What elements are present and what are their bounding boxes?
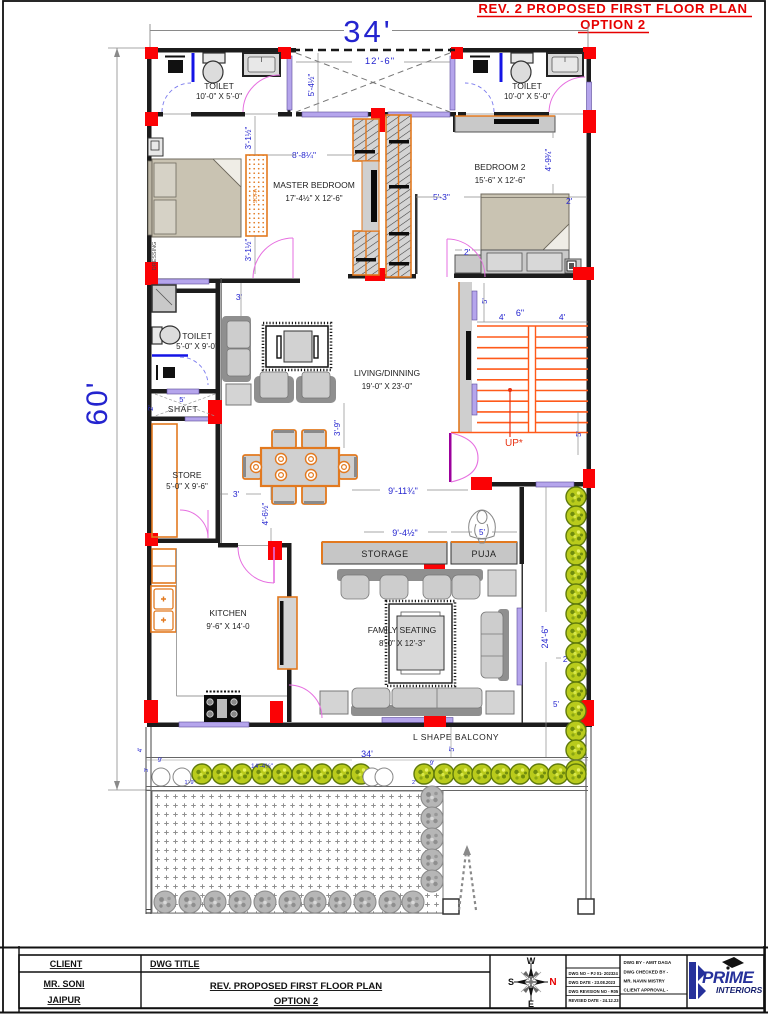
svg-text:TOILET: TOILET	[204, 81, 234, 91]
svg-text:PUJA: PUJA	[471, 549, 496, 559]
svg-text:DWG CHECKED BY -: DWG CHECKED BY -	[624, 970, 669, 975]
svg-text:REV. PROPOSED FIRST FLOOR PLA: REV. PROPOSED FIRST FLOOR PLAN	[210, 981, 382, 992]
svg-text:SOFA: SOFA	[253, 188, 259, 203]
svg-text:DWG DATE - 23.08.2023: DWG DATE - 23.08.2023	[569, 980, 616, 985]
svg-text:N: N	[549, 977, 556, 988]
svg-text:15'-6" X 12'-6": 15'-6" X 12'-6"	[475, 176, 526, 185]
svg-text:34': 34'	[361, 749, 373, 759]
svg-text:2': 2'	[412, 780, 416, 786]
svg-text:L SHAPE BALCONY: L SHAPE BALCONY	[413, 732, 499, 742]
svg-text:INTERIORS: INTERIORS	[716, 985, 763, 995]
svg-text:5': 5'	[179, 395, 185, 404]
svg-text:6": 6"	[516, 308, 524, 318]
svg-text:3': 3'	[233, 489, 240, 499]
svg-text:4': 4'	[559, 312, 566, 322]
svg-text:4'-6½": 4'-6½"	[261, 503, 270, 526]
svg-text:3'-1½": 3'-1½"	[244, 127, 253, 150]
svg-text:S: S	[508, 977, 514, 987]
svg-text:60': 60'	[81, 380, 114, 425]
svg-text:CLIENT APPROVAL -: CLIENT APPROVAL -	[624, 988, 669, 993]
svg-text:2': 2'	[146, 405, 155, 411]
svg-text:4': 4'	[138, 748, 144, 752]
svg-text:DWG BY - AMIT DAGA: DWG BY - AMIT DAGA	[624, 960, 672, 965]
svg-text:9'-11¾": 9'-11¾"	[388, 486, 418, 496]
svg-text:8'-0" X 12'-3": 8'-0" X 12'-3"	[379, 639, 425, 648]
svg-text:12'-6": 12'-6"	[365, 56, 395, 67]
svg-text:TOILET: TOILET	[512, 81, 542, 91]
svg-text:REVISED DATE - 24.12.23: REVISED DATE - 24.12.23	[569, 998, 620, 1003]
svg-text:DWG TITLE: DWG TITLE	[150, 959, 200, 969]
svg-text:5': 5'	[480, 298, 489, 304]
svg-text:STORE: STORE	[172, 470, 201, 480]
svg-text:1'-9": 1'-9"	[185, 780, 196, 786]
svg-text:TOILET: TOILET	[182, 331, 212, 341]
svg-text:9': 9'	[430, 761, 434, 767]
svg-text:SHAFT: SHAFT	[168, 404, 198, 414]
svg-text:LIVING/DINNING: LIVING/DINNING	[354, 368, 420, 378]
svg-text:34': 34'	[343, 14, 392, 49]
svg-text:5'-4½": 5'-4½"	[307, 74, 316, 97]
svg-text:DRESSING: DRESSING	[152, 242, 158, 271]
svg-text:5': 5'	[449, 746, 456, 751]
svg-text:10'-0" X 5'-0": 10'-0" X 5'-0"	[504, 92, 550, 101]
svg-text:BEDROOM 2: BEDROOM 2	[474, 162, 525, 172]
svg-text:17'-4½" X 12'-6": 17'-4½" X 12'-6"	[285, 194, 342, 203]
svg-text:OPTION 2: OPTION 2	[580, 17, 645, 32]
svg-text:MR. NAVIN MISTRY: MR. NAVIN MISTRY	[624, 979, 665, 984]
svg-text:10'-0" X 5'-0": 10'-0" X 5'-0"	[196, 92, 242, 101]
svg-text:MR. SONI: MR. SONI	[43, 979, 84, 989]
svg-text:5': 5'	[553, 700, 559, 709]
svg-text:14'-4½": 14'-4½"	[251, 762, 274, 770]
svg-text:DWG REVISION NO - R05: DWG REVISION NO - R05	[569, 989, 619, 994]
svg-text:4'-9¾": 4'-9¾"	[544, 149, 553, 172]
svg-text:STORAGE: STORAGE	[361, 549, 408, 559]
svg-text:FAMILY SEATING: FAMILY SEATING	[368, 625, 437, 635]
svg-text:19'-0" X 23'-0": 19'-0" X 23'-0"	[362, 382, 413, 391]
svg-text:JAIPUR: JAIPUR	[47, 995, 81, 1005]
svg-text:REV. 2 PROPOSED FIRST FLOOR: REV. 2 PROPOSED FIRST FLOOR PLAN	[478, 1, 747, 16]
svg-text:W: W	[527, 956, 536, 966]
svg-text:5': 5'	[479, 528, 485, 537]
svg-text:3'-9": 3'-9"	[333, 420, 342, 436]
svg-text:E: E	[528, 999, 534, 1009]
svg-text:4': 4'	[499, 312, 506, 322]
svg-text:9': 9'	[158, 758, 162, 764]
svg-text:9'-4½": 9'-4½"	[392, 528, 417, 538]
svg-text:DWG NO – PJ 01- 202324: DWG NO – PJ 01- 202324	[569, 971, 619, 976]
svg-text:OPTION 2: OPTION 2	[274, 996, 318, 1007]
svg-text:UP*: UP*	[505, 438, 523, 449]
svg-text:MASTER BEDROOM: MASTER BEDROOM	[273, 180, 355, 190]
svg-text:2': 2'	[566, 196, 573, 206]
svg-text:5': 5'	[574, 431, 583, 437]
svg-text:9'-6" X 14'-0: 9'-6" X 14'-0	[206, 622, 250, 631]
svg-text:3': 3'	[236, 292, 243, 302]
svg-text:CLIENT: CLIENT	[50, 959, 83, 969]
svg-text:3'-1½": 3'-1½"	[244, 239, 253, 262]
svg-text:2': 2'	[464, 247, 471, 257]
svg-text:3': 3'	[144, 768, 150, 772]
svg-text:5'-0" X 9'-6": 5'-0" X 9'-6"	[166, 482, 208, 491]
svg-text:5'-0" X 9'-0": 5'-0" X 9'-0"	[176, 342, 218, 351]
svg-text:KITCHEN: KITCHEN	[209, 608, 246, 618]
svg-text:24'-6": 24'-6"	[540, 626, 550, 649]
